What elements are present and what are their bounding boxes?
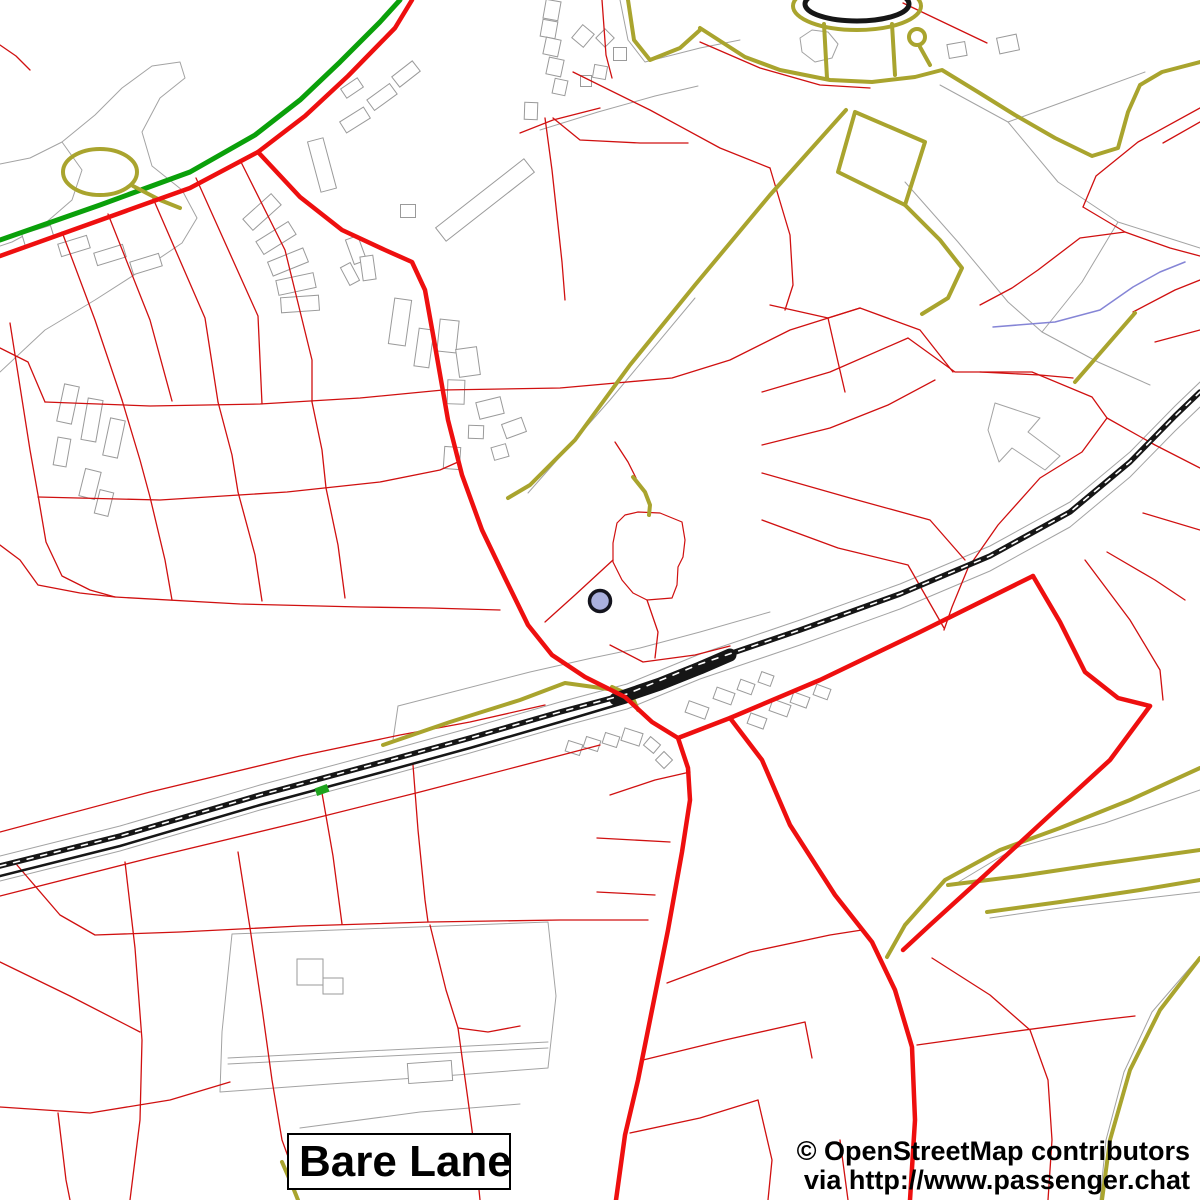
green-route (0, 0, 400, 240)
place-label: Bare Lane (299, 1137, 512, 1187)
olive-paths (133, 0, 1200, 1200)
railway-line (0, 392, 1200, 866)
gray-shapes (800, 30, 1060, 470)
attribution-line-source: via http://www.passenger.chat (797, 1166, 1190, 1194)
railway-dashes (0, 392, 1200, 866)
level-crossing-marker (315, 784, 330, 796)
pond-outline (613, 512, 685, 600)
station-platforms (616, 655, 730, 699)
attribution-line-copyright: © OpenStreetMap contributors (797, 1137, 1190, 1165)
running-track (805, 0, 909, 21)
map-canvas[interactable] (0, 0, 1200, 1200)
stream (993, 262, 1185, 327)
station-marker (590, 591, 611, 612)
map-viewport[interactable]: Bare Lane © OpenStreetMap contributors v… (0, 0, 1200, 1200)
railway-second-track (0, 702, 627, 876)
place-label-box: Bare Lane (287, 1133, 511, 1190)
map-attribution: © OpenStreetMap contributors via http://… (797, 1137, 1190, 1194)
